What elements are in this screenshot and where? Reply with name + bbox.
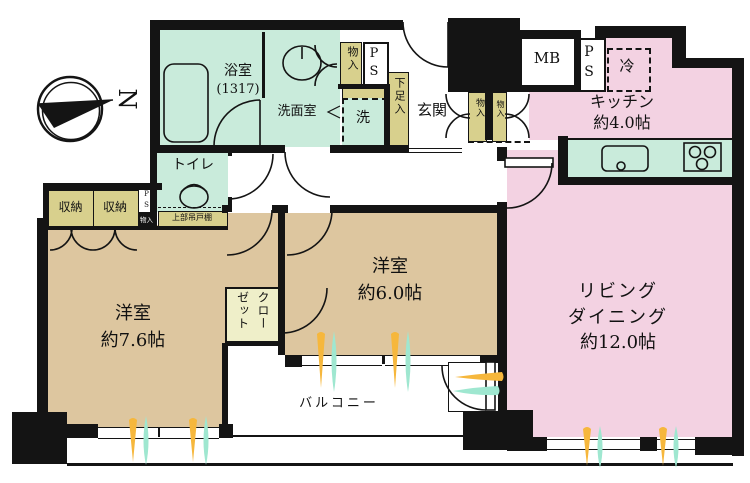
wall (150, 145, 285, 153)
hall-storage-2-doors-arc (505, 94, 529, 138)
kitchen-size-label: 約4.0帖 (542, 113, 702, 133)
hall-storage-2-label: 物入 (493, 100, 505, 136)
toilet-door-arc (228, 154, 273, 199)
wall (225, 341, 278, 346)
wall (43, 226, 228, 230)
wall (507, 437, 547, 451)
living-label-line2: ダイニング (538, 307, 698, 330)
compass-north-label: N (112, 84, 142, 114)
balcony-outer-line (67, 463, 733, 466)
bedroom1-label: 洋室 (53, 303, 213, 326)
storage-top-label: 物入 (343, 46, 359, 84)
wall (338, 84, 386, 89)
room-bedroom1-nook (225, 213, 278, 287)
bedroom1-size-label: 約7.6帖 (53, 330, 213, 353)
closet-1-label: 収納 (48, 200, 93, 215)
wall (695, 437, 744, 455)
wall (150, 20, 403, 30)
wall (558, 177, 734, 185)
washroom-door-arc (285, 152, 330, 197)
pipe-space-right-label: P S (576, 43, 602, 82)
toilet-dashed-line (158, 207, 226, 208)
window (657, 439, 695, 450)
wall (448, 18, 520, 92)
wall (497, 147, 507, 161)
wall (222, 343, 228, 438)
floor-plan: N 浴室 (1317) 洗面室 物入 P S 洗 下足入 玄関 MB P S 冷… (0, 0, 750, 483)
wall (278, 212, 285, 355)
wardrobe-label: クローゼット (231, 291, 273, 339)
entrance-step-line (407, 152, 462, 153)
storage-small-label: 物入 (138, 216, 155, 224)
kitchen-label: キッチン (542, 92, 702, 112)
laundry-label: 洗 (342, 110, 384, 128)
pipe-space-top-label: P S (363, 45, 385, 81)
wall (150, 20, 160, 153)
wall (228, 197, 232, 212)
wall-pillar (12, 412, 67, 464)
fridge-label: 冷 (607, 57, 647, 76)
wall (732, 58, 744, 456)
washroom-label: 洗面室 (266, 104, 328, 120)
window (302, 355, 382, 366)
entrance-label: 玄関 (403, 101, 461, 120)
wall (485, 92, 492, 140)
outside-mask (686, 0, 750, 58)
bath-label: 浴室 (202, 63, 274, 81)
bedroom2-size-label: 約6.0帖 (310, 283, 470, 306)
balcony-label: バルコニー (278, 396, 400, 412)
window (547, 439, 640, 450)
hall-storage-dashed-line (468, 141, 530, 143)
wall (640, 437, 657, 451)
kitchen-counter (566, 138, 736, 182)
toilet-label: トイレ (158, 157, 228, 175)
balcony-edge-line (228, 435, 500, 437)
window-mullion (382, 355, 385, 364)
bath-size-label: (1317) (202, 82, 274, 98)
pipe-space-small-label: P S (139, 189, 154, 210)
living-label-line1: リビング (538, 281, 698, 304)
balcony-door-area (448, 362, 499, 412)
wall (228, 148, 232, 156)
wall (285, 355, 302, 367)
wall (48, 424, 98, 438)
hall-storage-1-label: 物入 (470, 98, 484, 138)
wall (384, 84, 390, 150)
bedroom2-label: 洋室 (310, 256, 470, 279)
wall (37, 218, 48, 430)
entrance-door-arc (403, 22, 448, 67)
closet-2-label: 収納 (93, 200, 137, 215)
wall (330, 205, 497, 213)
living-size-label: 約12.0帖 (538, 332, 698, 355)
meter-box-label: MB (521, 49, 573, 68)
entrance-step-line (407, 148, 462, 149)
overhead-shelf-label: 上部吊戸棚 (158, 213, 226, 223)
window-mullion (158, 427, 160, 437)
compass-icon (38, 77, 113, 141)
